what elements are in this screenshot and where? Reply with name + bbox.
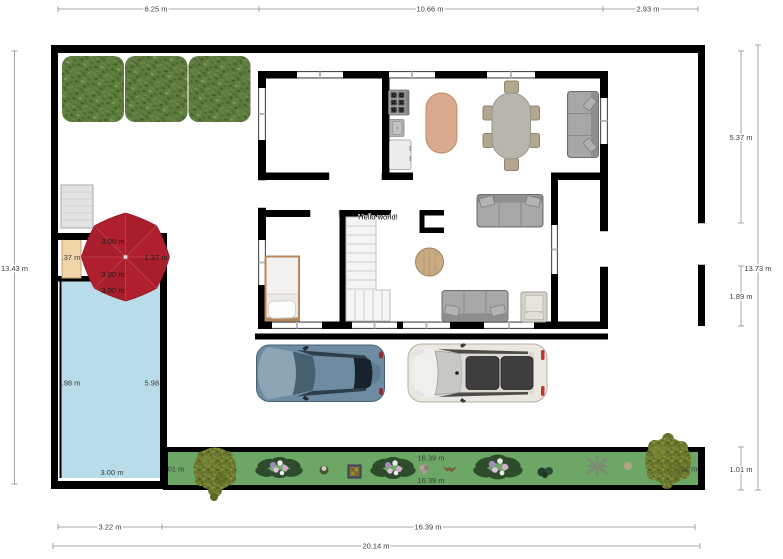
svg-text:6.25 m: 6.25 m <box>145 5 168 14</box>
svg-text:.98 m: .98 m <box>62 379 81 388</box>
svg-text:3.00 m: 3.00 m <box>102 237 125 246</box>
svg-text:13.73 m: 13.73 m <box>744 264 771 273</box>
svg-text:Hello world!: Hello world! <box>358 213 398 222</box>
svg-text:3.00 m: 3.00 m <box>102 270 125 279</box>
svg-text:3.22 m: 3.22 m <box>99 523 122 532</box>
svg-text:20.14 m: 20.14 m <box>362 542 389 551</box>
svg-text:1.37 m: 1.37 m <box>145 253 168 262</box>
svg-text:.01 m: .01 m <box>679 465 698 474</box>
svg-text:3.00 m: 3.00 m <box>101 468 124 477</box>
svg-text:01 m: 01 m <box>168 465 185 474</box>
svg-text:3.00 m: 3.00 m <box>102 286 125 295</box>
svg-text:13.43 m: 13.43 m <box>1 264 28 273</box>
svg-text:1.89 m: 1.89 m <box>730 292 753 301</box>
svg-text:10.66 m: 10.66 m <box>416 5 443 14</box>
svg-text:16.39 m: 16.39 m <box>417 476 444 485</box>
svg-text:2.93 m: 2.93 m <box>637 5 660 14</box>
svg-text:16.39 m: 16.39 m <box>417 454 444 463</box>
svg-text:16.39 m: 16.39 m <box>414 523 441 532</box>
svg-text:.37 m: .37 m <box>62 253 81 262</box>
svg-text:5.37 m: 5.37 m <box>730 133 753 142</box>
svg-text:1.01 m: 1.01 m <box>730 465 753 474</box>
